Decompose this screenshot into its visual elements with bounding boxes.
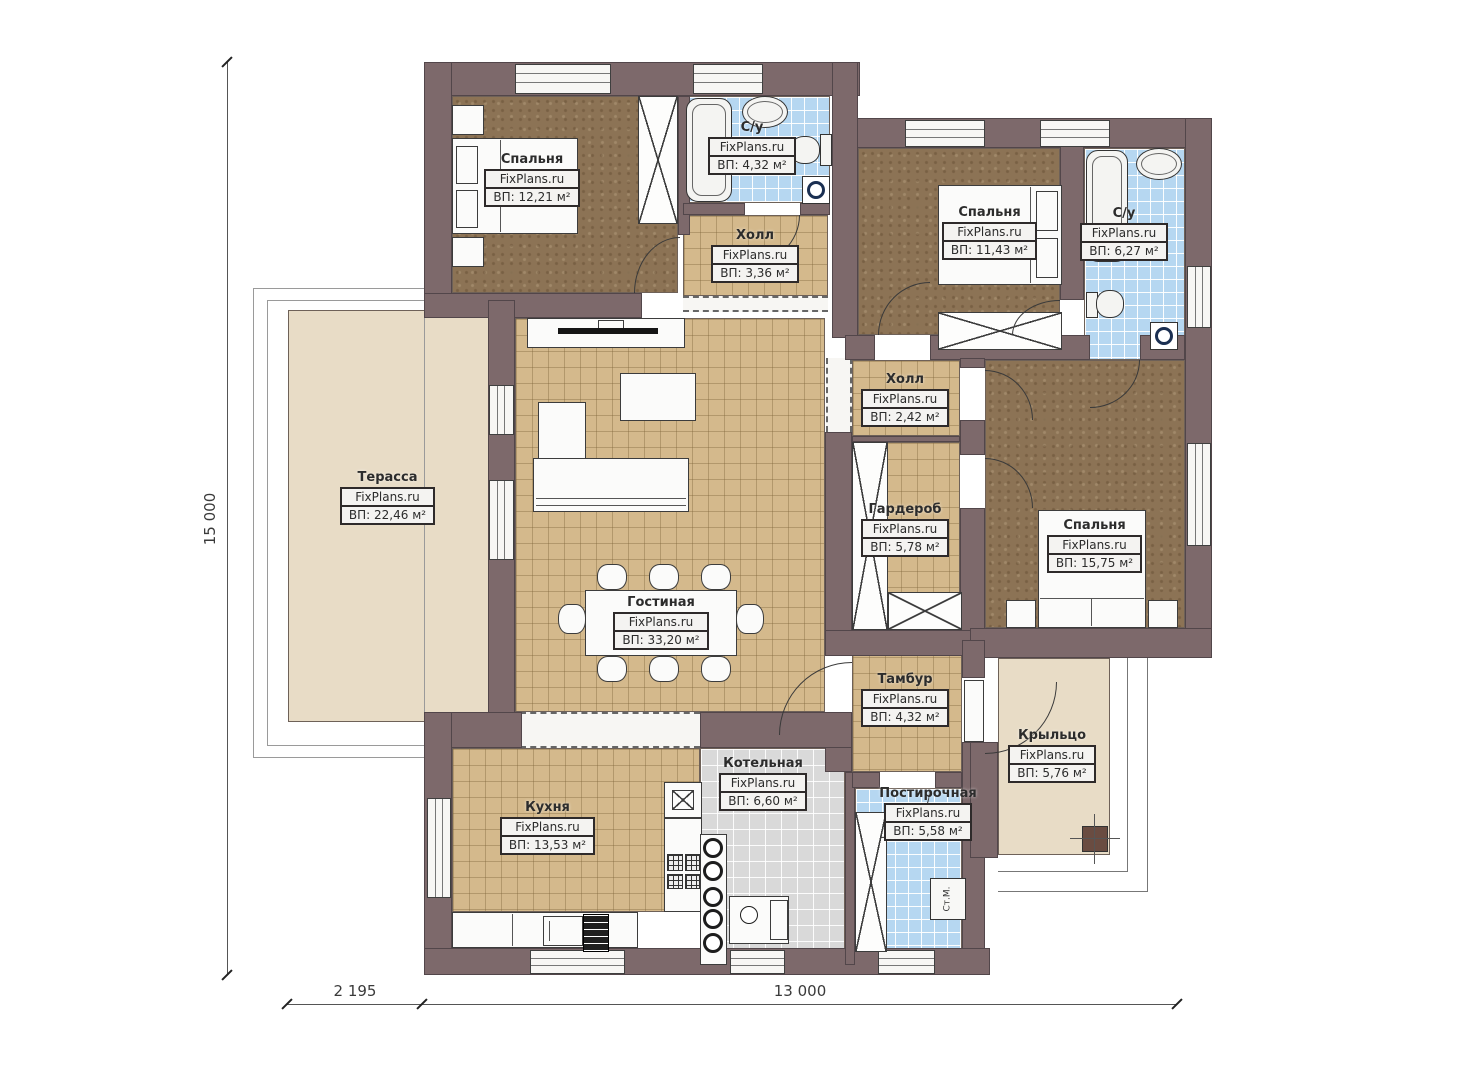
wall-under-bedroom2-a [845,335,875,360]
watermark: FixPlans.ru [944,224,1035,242]
wall-right-outer [1185,118,1212,658]
watermark: FixPlans.ru [502,819,593,837]
stove-burner-grid [667,854,683,871]
room-label-kitchen: Кухня FixPlans.ru ВП: 13,53 м² [485,800,610,855]
boiler-pipe [703,861,723,881]
room-area: ВП: 6,27 м² [1082,243,1166,259]
watermark: FixPlans.ru [713,247,797,265]
wardrobe-closet-horizontal [888,592,962,630]
room-name: Котельная [702,756,824,771]
dimension-left-value: 15 000 [201,489,219,549]
sink-bath2 [1136,148,1182,180]
window-living-terrace-1 [489,385,514,435]
sofa-line [536,505,686,506]
window-bedroom2-top [905,120,985,147]
floor-drain-bath2 [1150,322,1178,350]
room-name: Спальня [922,205,1057,220]
room-name: Гостиная [596,595,726,610]
dining-chair [701,564,731,590]
wall-hall2-bedroom3-a [960,358,985,368]
room-name: С/у [692,120,812,135]
room-area: ВП: 11,43 м² [944,242,1035,258]
watermark: FixPlans.ru [886,805,970,823]
boiler-unit-side [770,900,788,940]
room-area: ВП: 13,53 м² [502,837,593,853]
floor-plan: Ст.М. Спальня FixPlans.ru ВП: 12,21 м² С… [0,0,1473,1080]
window-bedroom1-top [515,64,611,94]
boiler-pipe [703,909,723,929]
boiler-dial [740,906,758,924]
room-label-bedroom1: Спальня FixPlans.ru ВП: 12,21 м² [462,152,602,207]
room-name: Терасса [320,470,455,485]
watermark: FixPlans.ru [863,691,947,709]
room-label-bedroom2: Спальня FixPlans.ru ВП: 11,43 м² [922,205,1057,260]
wall-tambour-right-a [962,640,985,678]
watermark: FixPlans.ru [615,614,706,632]
wardrobe-bedroom1 [638,96,678,224]
window-kitchen-bottom [530,950,625,974]
room-area: ВП: 5,76 м² [1010,765,1094,781]
wall-bath1-hall1-a [683,203,745,215]
wall-top-right-block [845,118,1212,148]
room-label-living: Гостиная FixPlans.ru ВП: 33,20 м² [596,595,726,650]
room-label-boiler: Котельная FixPlans.ru ВП: 6,60 м² [702,756,824,811]
window-bath1-top [693,64,763,94]
room-label-bath2: С/у FixPlans.ru ВП: 6,27 м² [1068,206,1180,261]
dimension-bottom-right-value: 13 000 [755,982,845,1000]
room-name: Холл [846,372,964,387]
dining-chair [597,564,627,590]
boiler-pipe [703,933,723,953]
room-name: Крыльцо [992,728,1112,743]
room-area: ВП: 12,21 м² [486,189,577,205]
room-name: Холл [695,228,815,243]
washing-machine-label: Ст.М. [943,886,953,911]
dimension-line-left [227,62,228,975]
watermark: FixPlans.ru [1082,225,1166,243]
room-label-terrace: Терасса FixPlans.ru ВП: 22,46 м² [320,470,455,525]
window-bath2-top [1040,120,1110,147]
room-area: ВП: 5,58 м² [886,823,970,839]
room-label-laundry: Постирочная FixPlans.ru ВП: 5,58 м² [868,786,988,841]
room-area: ВП: 22,46 м² [342,507,433,523]
dining-chair [649,656,679,682]
bed-line [1040,598,1144,599]
tv-screen [558,328,658,334]
wall-bedroom1-bottom [424,293,642,318]
dining-chair [701,656,731,682]
wall-boiler-laundry [845,772,855,965]
watermark: FixPlans.ru [1049,537,1140,555]
room-area: ВП: 5,78 м² [863,539,947,555]
boiler-pipe [703,838,723,858]
coffee-table [620,373,696,421]
room-area: ВП: 3,36 м² [713,265,797,281]
entrance-door-panel [964,680,984,742]
dining-chair [736,604,764,634]
wall-left-upper [424,62,452,318]
window-living-terrace-2 [489,480,514,560]
watermark: FixPlans.ru [863,521,947,539]
nightstand [452,105,484,135]
fridge-x [672,790,694,810]
dishwasher [583,914,609,952]
room-name: Спальня [462,152,602,167]
boiler-pipe [703,887,723,907]
room-area: ВП: 15,75 м² [1049,555,1140,571]
window-right-upper [1187,266,1211,328]
nightstand [452,237,484,267]
wall-bedroom3-bottom [970,628,1212,658]
washing-machine: Ст.М. [930,878,966,920]
wall-top-left-block [424,62,860,96]
room-label-hall1: Холл FixPlans.ru ВП: 3,36 м² [695,228,815,283]
room-name: Тамбур [845,672,965,687]
porch-column [1082,826,1108,852]
watermark: FixPlans.ru [863,391,947,409]
floor-drain-bath1 [802,176,830,204]
porch-column-axis-h [1070,838,1120,839]
toilet-bath2 [1096,290,1124,318]
sofa-line [536,498,686,499]
watermark: FixPlans.ru [486,171,577,189]
room-label-bedroom3: Спальня FixPlans.ru ВП: 15,75 м² [1032,518,1157,573]
room-area: ВП: 33,20 м² [615,632,706,648]
watermark: FixPlans.ru [721,775,805,793]
room-area: ВП: 4,32 м² [710,157,794,173]
stove-burner-grid [667,874,683,889]
sofa-section-horizontal [533,458,689,512]
room-name: С/у [1068,206,1180,221]
room-label-tambour: Тамбур FixPlans.ru ВП: 4,32 м² [845,672,965,727]
nightstand [1006,600,1036,628]
wall-bath1-hall1-b [800,203,830,215]
room-label-hall2: Холл FixPlans.ru ВП: 2,42 м² [846,372,964,427]
dimension-bottom-left-value: 2 195 [310,982,400,1000]
sink-basin [549,921,550,941]
window-laundry-bottom [878,950,935,974]
room-name: Гардероб [845,502,965,517]
stove-burner-grid [685,874,700,889]
porch-column-axis-v [1094,814,1095,864]
window-kitchen-left [427,798,451,898]
wall-center-vertical [832,62,858,338]
watermark: FixPlans.ru [710,139,794,157]
passage-hall1-living [683,296,828,312]
stove-burner-grid [685,854,700,871]
room-name: Постирочная [868,786,988,801]
counter-line [512,914,513,946]
window-boiler-bottom [730,950,785,974]
room-area: ВП: 4,32 м² [863,709,947,725]
room-area: ВП: 2,42 м² [863,409,947,425]
nightstand [1148,600,1178,628]
toilet-tank-bath1 [820,134,832,166]
room-label-wardrobe: Гардероб FixPlans.ru ВП: 5,78 м² [845,502,965,557]
dining-chair [649,564,679,590]
window-bedroom3-right [1187,443,1211,546]
watermark: FixPlans.ru [342,489,433,507]
dining-chair [597,656,627,682]
watermark: FixPlans.ru [1010,747,1094,765]
room-name: Кухня [485,800,610,815]
bed-line [1091,599,1092,626]
passage-living-kitchen [520,712,700,748]
room-label-bath1: С/у FixPlans.ru ВП: 4,32 м² [692,120,812,175]
room-name: Спальня [1032,518,1157,533]
dining-chair [558,604,586,634]
room-label-porch: Крыльцо FixPlans.ru ВП: 5,76 м² [992,728,1112,783]
wall-wardrobe-tambour [825,630,985,656]
room-area: ВП: 6,60 м² [721,793,805,809]
